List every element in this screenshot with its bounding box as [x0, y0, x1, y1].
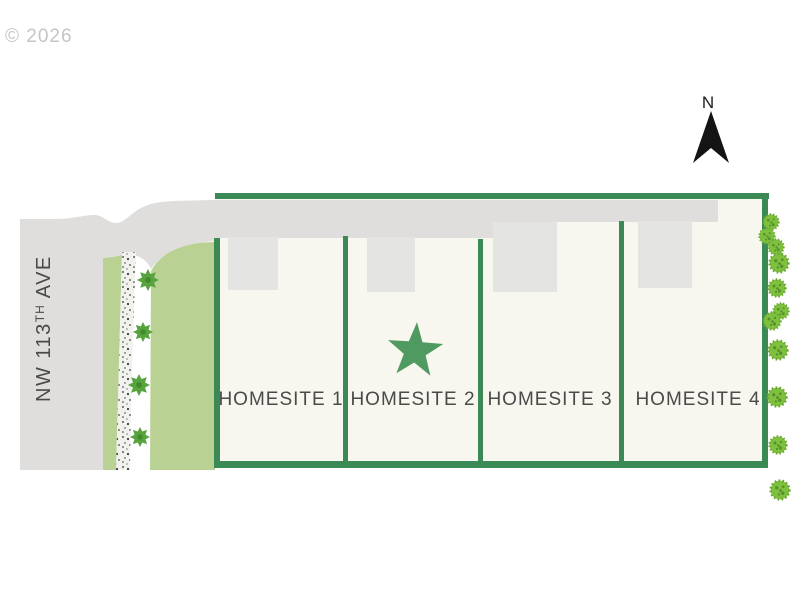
site-plan-map: © 2026 HOMESITE 1 HOMESITE 2 HOMESITE 3 …: [0, 0, 800, 600]
north-arrow-icon: [693, 111, 729, 163]
bush-icon: [769, 341, 788, 360]
bush-icon: [770, 437, 787, 454]
driveway-homesite-3: [493, 222, 557, 292]
lot-divider-2-3: [478, 239, 483, 464]
bush-icon: [769, 280, 786, 297]
tree-icon: [128, 374, 150, 396]
bush-icon: [768, 388, 787, 407]
landscape-strip-right: [150, 242, 215, 470]
street-name-suffix: AVE: [33, 255, 55, 304]
homesite-3-label: HOMESITE 3: [487, 389, 612, 410]
tree-icon: [137, 269, 159, 291]
driveway-homesite-2: [367, 237, 415, 292]
homesite-2-label: HOMESITE 2: [350, 389, 475, 410]
property-border-bottom: [214, 461, 768, 468]
homesite-4-label: HOMESITE 4: [635, 389, 760, 410]
property-border-left: [214, 238, 220, 464]
site-plan-page: © 2026 HOMESITE 1 HOMESITE 2 HOMESITE 3 …: [0, 0, 800, 600]
bush-icon: [771, 481, 790, 500]
north-label: N: [702, 93, 714, 112]
property-border-top: [215, 193, 769, 199]
driveway-homesite-4: [638, 221, 692, 288]
street-name-label: NW 113TH AVE: [33, 255, 55, 402]
bush-icon: [770, 254, 789, 273]
driveway-homesite-1: [228, 237, 278, 290]
bush-icon: [764, 313, 781, 330]
tree-icon: [130, 427, 150, 447]
north-compass: N: [693, 93, 729, 163]
bush-icon: [763, 214, 778, 229]
lot-divider-3-4: [619, 221, 624, 464]
street-name-superscript: TH: [33, 304, 47, 322]
homesite-1-label: HOMESITE 1: [218, 389, 343, 410]
tree-icon: [133, 322, 153, 342]
lot-divider-1-2: [343, 236, 348, 464]
bush-icon: [768, 239, 783, 254]
copyright-watermark: © 2026: [5, 26, 73, 47]
street-name-prefix: NW 113: [33, 322, 55, 402]
